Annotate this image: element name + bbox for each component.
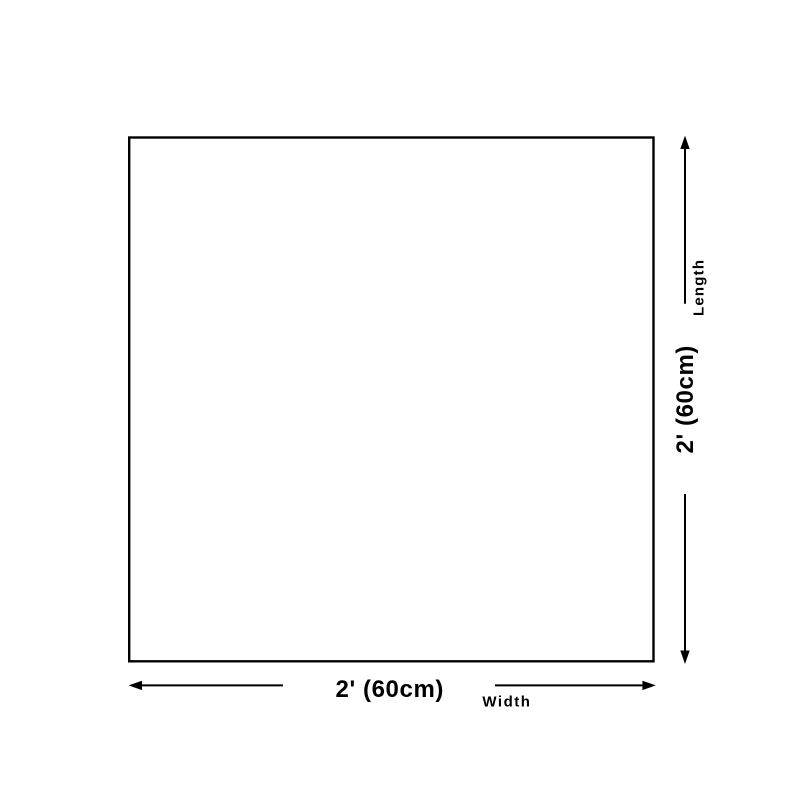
svg-text:2' (60cm): 2' (60cm) — [672, 345, 699, 454]
svg-text:Length: Length — [691, 259, 708, 316]
svg-text:2' (60cm): 2' (60cm) — [336, 676, 445, 703]
svg-text:Width: Width — [482, 694, 531, 711]
